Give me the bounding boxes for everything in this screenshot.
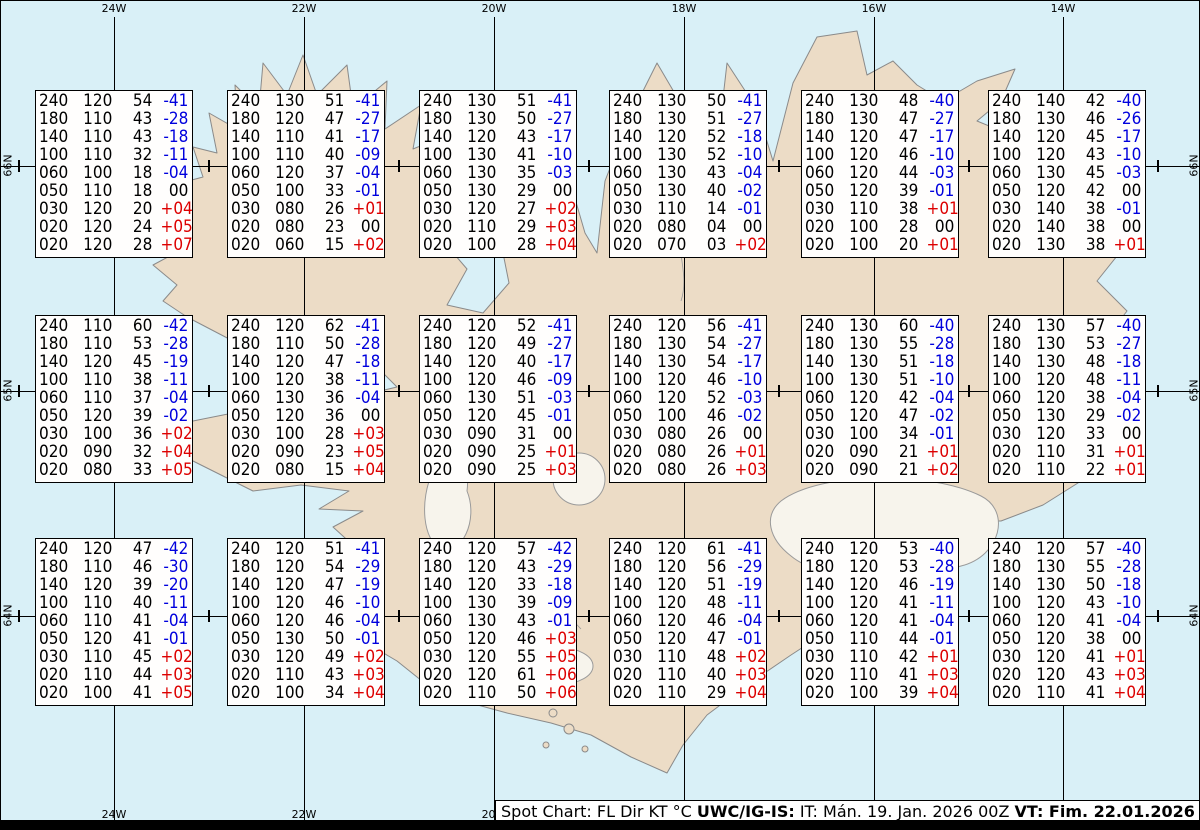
station-row: 10012038-11 [231, 371, 380, 389]
temp-value: -40 [927, 317, 955, 335]
fl-value: 180 [805, 335, 841, 353]
fl-value: 180 [231, 558, 267, 576]
dir-value: 120 [657, 558, 693, 576]
dir-value: 080 [657, 425, 693, 443]
temp-value: -02 [1114, 407, 1142, 425]
kt-value: 22 [1080, 461, 1105, 479]
fl-value: 020 [613, 684, 649, 702]
footer-text-segment: UWC/IG-IS: [697, 802, 795, 821]
dir-value: 120 [1036, 630, 1072, 648]
grid-tick [968, 610, 970, 622]
dir-value: 120 [467, 200, 503, 218]
station-row: 02011022+01 [992, 461, 1141, 479]
fl-value: 140 [992, 353, 1028, 371]
fl-value: 030 [613, 425, 649, 443]
temp-value: -18 [735, 128, 763, 146]
temp-value: +04 [353, 461, 385, 479]
kt-value: 46 [319, 594, 344, 612]
fl-value: 060 [423, 164, 459, 182]
temp-value: -18 [161, 128, 189, 146]
station-row: 06012052-03 [613, 389, 762, 407]
fl-value: 020 [613, 443, 649, 461]
station-box: 24013057-4018013053-2714013048-181001204… [988, 315, 1146, 483]
station-box: 24012057-4018013055-2814013050-181001204… [988, 538, 1146, 706]
station-row: 0501203600 [231, 407, 380, 425]
station-row: 18012056-29 [613, 558, 762, 576]
station-row: 24013057-40 [992, 317, 1141, 335]
kt-value: 51 [319, 92, 344, 110]
fl-value: 020 [231, 236, 267, 254]
kt-value: 50 [511, 110, 536, 128]
fl-value: 100 [613, 146, 649, 164]
fl-value: 020 [992, 443, 1028, 461]
station-box: 24011060-4218011053-2814012045-191001103… [35, 315, 193, 483]
temp-value: -01 [735, 200, 763, 218]
fl-value: 180 [805, 558, 841, 576]
fl-value: 030 [423, 425, 459, 443]
fl-value: 240 [231, 540, 267, 558]
station-row: 06013045-03 [992, 164, 1141, 182]
station-row: 02009021+01 [805, 443, 954, 461]
temp-value: +04 [1114, 684, 1146, 702]
dir-value: 120 [657, 371, 693, 389]
kt-value: 47 [319, 576, 344, 594]
temp-value: 00 [353, 407, 381, 425]
station-row: 18011046-30 [39, 558, 188, 576]
dir-value: 110 [83, 558, 119, 576]
dir-value: 120 [1036, 146, 1072, 164]
dir-value: 110 [1036, 684, 1072, 702]
fl-value: 060 [992, 389, 1028, 407]
kt-value: 57 [1080, 540, 1105, 558]
dir-value: 120 [1036, 612, 1072, 630]
kt-value: 48 [701, 594, 726, 612]
kt-value: 32 [127, 443, 152, 461]
grid-tick [18, 160, 20, 172]
station-row: 24012056-41 [613, 317, 762, 335]
fl-value: 050 [39, 630, 75, 648]
dir-value: 120 [657, 389, 693, 407]
fl-value: 240 [423, 540, 459, 558]
temp-value: -29 [353, 558, 381, 576]
dir-value: 080 [275, 218, 311, 236]
temp-value: -17 [545, 353, 573, 371]
station-row: 0200802300 [231, 218, 380, 236]
temp-value: +02 [353, 236, 385, 254]
dir-value: 130 [467, 164, 503, 182]
fl-value: 060 [613, 389, 649, 407]
temp-value: 00 [927, 218, 955, 236]
temp-value: +01 [927, 236, 959, 254]
lat-label-left: 64N [2, 601, 15, 631]
kt-value: 40 [511, 353, 536, 371]
kt-value: 60 [127, 317, 152, 335]
temp-value: -02 [735, 182, 763, 200]
fl-value: 100 [231, 594, 267, 612]
fl-value: 020 [39, 236, 75, 254]
station-row: 02012028+07 [39, 236, 188, 254]
grid-tick [778, 385, 780, 397]
kt-value: 50 [511, 684, 536, 702]
dir-value: 120 [1036, 389, 1072, 407]
kt-value: 38 [127, 371, 152, 389]
kt-value: 51 [893, 371, 918, 389]
kt-value: 53 [127, 335, 152, 353]
kt-value: 46 [319, 612, 344, 630]
fl-value: 030 [992, 200, 1028, 218]
station-box: 24012047-4218011046-3014012039-201001104… [35, 538, 193, 706]
station-box: 24014042-4018013046-2614012045-171001204… [988, 90, 1146, 258]
station-row: 0300903100 [423, 425, 572, 443]
kt-value: 25 [511, 461, 536, 479]
fl-value: 050 [423, 182, 459, 200]
dir-value: 110 [83, 110, 119, 128]
dir-value: 120 [467, 335, 503, 353]
grid-tick [208, 385, 210, 397]
kt-value: 50 [701, 92, 726, 110]
fl-value: 140 [613, 576, 649, 594]
fl-value: 180 [992, 335, 1028, 353]
station-row: 14013054-17 [613, 353, 762, 371]
station-row: 06012046-04 [231, 612, 380, 630]
station-row: 0200800400 [613, 218, 762, 236]
temp-value: -01 [735, 630, 763, 648]
station-row: 03012055+05 [423, 648, 572, 666]
fl-value: 020 [805, 218, 841, 236]
station-row: 0201002800 [805, 218, 954, 236]
kt-value: 43 [319, 666, 344, 684]
station-table: 24013051-4118012047-2714011041-171001104… [231, 92, 380, 254]
station-row: 02011041+03 [805, 666, 954, 684]
kt-value: 27 [511, 200, 536, 218]
station-row: 06012041-04 [992, 612, 1141, 630]
footer-text-segment: VT: Fim. 22.01.2026 00Z [1015, 802, 1200, 821]
dir-value: 130 [1036, 317, 1072, 335]
kt-value: 43 [511, 558, 536, 576]
temp-value: +04 [927, 684, 959, 702]
fl-value: 140 [231, 353, 267, 371]
fl-value: 020 [992, 236, 1028, 254]
dir-value: 100 [849, 218, 885, 236]
temp-value: -20 [161, 576, 189, 594]
grid-tick [778, 160, 780, 172]
temp-value: -19 [735, 576, 763, 594]
station-table: 24012051-4118012054-2914012047-191001204… [231, 540, 380, 702]
fl-value: 050 [231, 182, 267, 200]
dir-value: 120 [275, 371, 311, 389]
kt-value: 42 [1080, 92, 1105, 110]
dir-value: 110 [467, 218, 503, 236]
station-row: 24012062-41 [231, 317, 380, 335]
dir-value: 120 [275, 576, 311, 594]
kt-value: 41 [1080, 612, 1105, 630]
dir-value: 080 [275, 461, 311, 479]
station-row: 24014042-40 [992, 92, 1141, 110]
fl-value: 100 [39, 371, 75, 389]
temp-value: -42 [545, 540, 573, 558]
dir-value: 110 [657, 200, 693, 218]
kt-value: 26 [701, 461, 726, 479]
station-table: 24012047-4218011046-3014012039-201001104… [39, 540, 188, 702]
temp-value: -01 [927, 630, 955, 648]
kt-value: 40 [701, 182, 726, 200]
station-row: 18011043-28 [39, 110, 188, 128]
dir-value: 130 [657, 146, 693, 164]
dir-value: 130 [657, 182, 693, 200]
fl-value: 060 [805, 164, 841, 182]
temp-value: -27 [353, 110, 381, 128]
lon-label-top: 20W [472, 2, 516, 16]
station-row: 03012041+01 [992, 648, 1141, 666]
temp-value: +02 [545, 200, 577, 218]
temp-value: +01 [927, 200, 959, 218]
kt-value: 47 [893, 407, 918, 425]
fl-value: 030 [423, 648, 459, 666]
temp-value: -30 [161, 558, 189, 576]
dir-value: 140 [1036, 200, 1072, 218]
dir-value: 120 [467, 317, 503, 335]
dir-value: 110 [83, 648, 119, 666]
fl-value: 020 [423, 461, 459, 479]
temp-value: -10 [735, 371, 763, 389]
dir-value: 120 [275, 317, 311, 335]
temp-value: -01 [927, 425, 955, 443]
temp-value: -28 [927, 558, 955, 576]
station-table: 24012062-4118011050-2814012047-181001203… [231, 317, 380, 479]
temp-value: +04 [545, 236, 577, 254]
temp-value: -11 [927, 594, 955, 612]
kt-value: 52 [701, 389, 726, 407]
temp-value: -18 [1114, 576, 1142, 594]
fl-value: 020 [423, 218, 459, 236]
station-table: 24013057-4018013053-2714013048-181001204… [992, 317, 1141, 479]
station-row: 10012048-11 [992, 371, 1141, 389]
station-row: 14012045-19 [39, 353, 188, 371]
fl-value: 240 [805, 317, 841, 335]
dir-value: 120 [275, 540, 311, 558]
grid-tick [778, 610, 780, 622]
dir-value: 130 [1036, 576, 1072, 594]
station-table: 24012057-4218012043-2914012033-181001303… [423, 540, 572, 702]
station-box: 24012057-4218012043-2914012033-181001303… [419, 538, 577, 706]
station-row: 03012020+04 [39, 200, 188, 218]
kt-value: 28 [511, 236, 536, 254]
dir-value: 120 [275, 110, 311, 128]
temp-value: -41 [353, 92, 381, 110]
kt-value: 36 [319, 389, 344, 407]
dir-value: 130 [849, 92, 885, 110]
grid-tick [588, 385, 590, 397]
temp-value: -28 [161, 110, 189, 128]
dir-value: 110 [849, 666, 885, 684]
station-row: 06012037-04 [231, 164, 380, 182]
fl-value: 180 [805, 110, 841, 128]
station-row: 05013029-02 [992, 407, 1141, 425]
fl-value: 240 [613, 540, 649, 558]
dir-value: 120 [657, 630, 693, 648]
kt-value: 18 [127, 182, 152, 200]
kt-value: 51 [511, 92, 536, 110]
fl-value: 060 [992, 164, 1028, 182]
station-row: 24012061-41 [613, 540, 762, 558]
station-row: 02011041+04 [992, 684, 1141, 702]
temp-value: -02 [927, 407, 955, 425]
station-row: 24012054-41 [39, 92, 188, 110]
fl-value: 030 [805, 200, 841, 218]
temp-value: -17 [545, 128, 573, 146]
station-row: 05010033-01 [231, 182, 380, 200]
kt-value: 57 [511, 540, 536, 558]
station-row: 02010020+01 [805, 236, 954, 254]
kt-value: 48 [1080, 353, 1105, 371]
dir-value: 130 [657, 110, 693, 128]
island [564, 724, 574, 734]
kt-value: 39 [893, 182, 918, 200]
station-row: 24012057-42 [423, 540, 572, 558]
kt-value: 47 [701, 630, 726, 648]
temp-value: +04 [353, 684, 385, 702]
temp-value: -04 [1114, 389, 1142, 407]
temp-value: -11 [353, 371, 381, 389]
fl-value: 140 [231, 576, 267, 594]
temp-value: -03 [735, 389, 763, 407]
dir-value: 120 [1036, 594, 1072, 612]
temp-value: +02 [161, 648, 193, 666]
station-row: 05013050-01 [231, 630, 380, 648]
temp-value: -04 [353, 389, 381, 407]
station-row: 18011053-28 [39, 335, 188, 353]
kt-value: 29 [1080, 407, 1105, 425]
dir-value: 130 [849, 335, 885, 353]
station-row: 24012052-41 [423, 317, 572, 335]
kt-value: 28 [127, 236, 152, 254]
kt-value: 40 [127, 594, 152, 612]
station-table: 24012057-4018013055-2814013050-181001204… [992, 540, 1141, 702]
fl-value: 020 [805, 666, 841, 684]
kt-value: 39 [511, 594, 536, 612]
kt-value: 50 [1080, 576, 1105, 594]
station-table: 24012052-4118012049-2714012040-171001204… [423, 317, 572, 479]
kt-value: 46 [1080, 110, 1105, 128]
dir-value: 110 [849, 200, 885, 218]
dir-value: 120 [275, 594, 311, 612]
fl-value: 240 [39, 92, 75, 110]
station-row: 14013051-18 [805, 353, 954, 371]
kt-value: 51 [319, 540, 344, 558]
lat-label-right: 66N [1188, 151, 1200, 181]
temp-value: +04 [161, 200, 193, 218]
temp-value: -41 [735, 317, 763, 335]
kt-value: 36 [127, 425, 152, 443]
dir-value: 140 [1036, 92, 1072, 110]
kt-value: 52 [511, 317, 536, 335]
kt-value: 43 [511, 128, 536, 146]
dir-value: 120 [467, 630, 503, 648]
fl-value: 050 [231, 407, 267, 425]
dir-value: 120 [1036, 425, 1072, 443]
temp-value: -28 [1114, 558, 1142, 576]
kt-value: 38 [1080, 218, 1105, 236]
dir-value: 110 [83, 128, 119, 146]
station-row: 02011040+03 [613, 666, 762, 684]
kt-value: 18 [127, 164, 152, 182]
temp-value: -02 [161, 407, 189, 425]
fl-value: 180 [39, 110, 75, 128]
temp-value: +02 [927, 461, 959, 479]
fl-value: 180 [613, 110, 649, 128]
station-row: 02010039+04 [805, 684, 954, 702]
station-row: 02013038+01 [992, 236, 1141, 254]
station-row: 02012043+03 [992, 666, 1141, 684]
fl-value: 020 [423, 236, 459, 254]
fl-value: 060 [992, 612, 1028, 630]
station-row: 02012024+05 [39, 218, 188, 236]
station-row: 14012052-18 [613, 128, 762, 146]
fl-value: 030 [992, 648, 1028, 666]
kt-value: 46 [127, 558, 152, 576]
kt-value: 53 [893, 540, 918, 558]
dir-value: 120 [467, 576, 503, 594]
fl-value: 060 [423, 389, 459, 407]
temp-value: -10 [545, 146, 573, 164]
fl-value: 140 [423, 353, 459, 371]
station-row: 05013040-02 [613, 182, 762, 200]
dir-value: 130 [657, 353, 693, 371]
dir-value: 120 [467, 558, 503, 576]
station-row: 06013043-01 [423, 612, 572, 630]
island [582, 746, 588, 752]
fl-value: 240 [992, 92, 1028, 110]
fl-value: 100 [39, 594, 75, 612]
fl-value: 030 [231, 200, 267, 218]
dir-value: 110 [83, 389, 119, 407]
station-row: 0501302900 [423, 182, 572, 200]
temp-value: +03 [545, 461, 577, 479]
station-row: 18013046-26 [992, 110, 1141, 128]
fl-value: 100 [423, 146, 459, 164]
dir-value: 100 [467, 236, 503, 254]
station-box: 24012052-4118012049-2714012040-171001204… [419, 315, 577, 483]
fl-value: 180 [423, 558, 459, 576]
temp-value: 00 [545, 425, 573, 443]
station-row: 0301203300 [992, 425, 1141, 443]
station-table: 24012053-4018012053-2814012046-191001204… [805, 540, 954, 702]
dir-value: 100 [275, 425, 311, 443]
dir-value: 100 [83, 684, 119, 702]
temp-value: -28 [353, 335, 381, 353]
kt-value: 44 [127, 666, 152, 684]
station-row: 05012039-02 [39, 407, 188, 425]
fl-value: 020 [423, 684, 459, 702]
fl-value: 030 [805, 425, 841, 443]
dir-value: 080 [275, 200, 311, 218]
fl-value: 060 [39, 612, 75, 630]
lat-label-right: 64N [1188, 601, 1200, 631]
kt-value: 44 [893, 164, 918, 182]
fl-value: 020 [805, 684, 841, 702]
temp-value: -17 [1114, 128, 1142, 146]
dir-value: 130 [275, 389, 311, 407]
temp-value: -10 [927, 371, 955, 389]
kt-value: 41 [893, 666, 918, 684]
kt-value: 41 [319, 128, 344, 146]
station-row: 14012047-17 [805, 128, 954, 146]
dir-value: 130 [467, 92, 503, 110]
lon-label-top: 14W [1041, 2, 1085, 16]
kt-value: 38 [1080, 389, 1105, 407]
kt-value: 49 [319, 648, 344, 666]
fl-value: 180 [423, 110, 459, 128]
